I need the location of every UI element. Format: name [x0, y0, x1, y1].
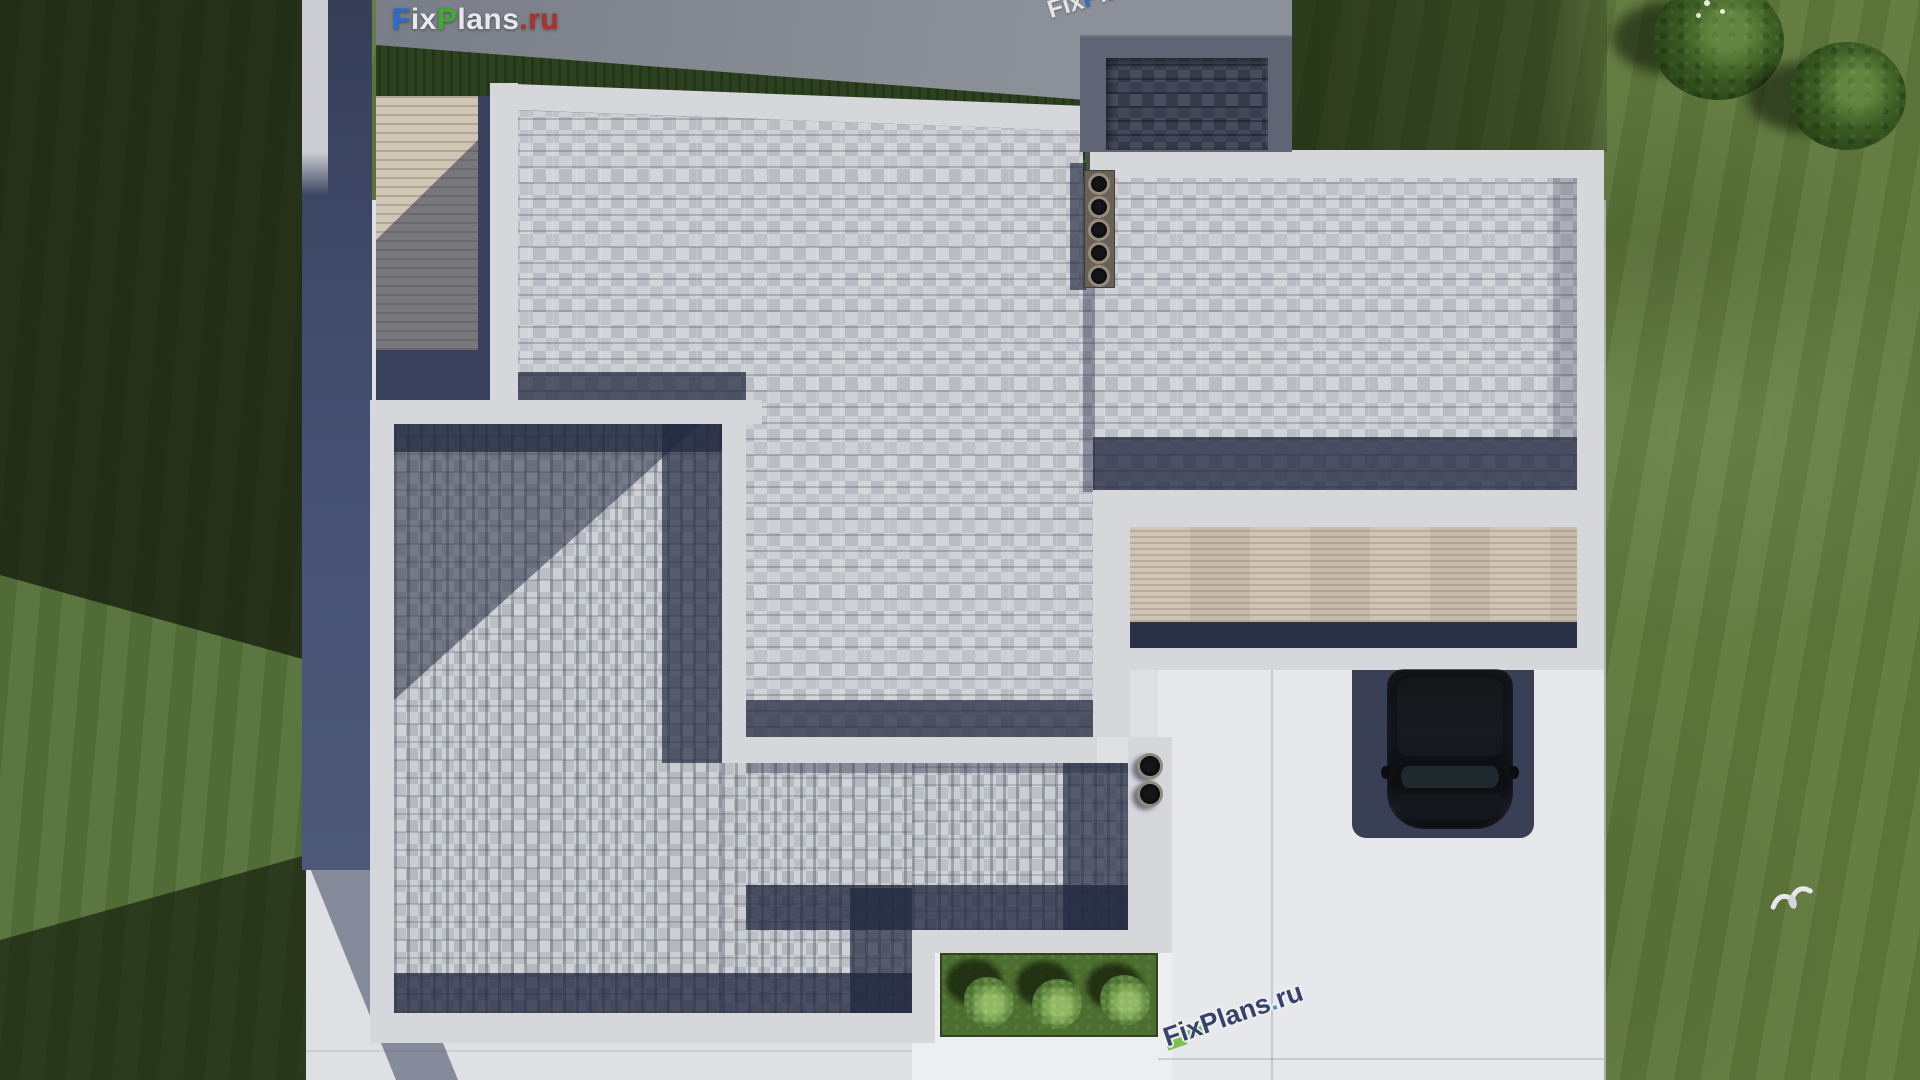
bush [1100, 975, 1150, 1025]
car-roof-highlight [1397, 678, 1503, 756]
parapet-mid-vertical [722, 400, 746, 763]
lawn-north-shade [1292, 0, 1607, 152]
tree-blossom [1704, 0, 1710, 6]
brand-logo-letter-p: P [437, 3, 458, 36]
car [1388, 670, 1512, 828]
brand-logo-letter-f: F [392, 3, 411, 36]
roof-shadow-right-sliver [1553, 177, 1577, 437]
roof-lower-bottom-band [394, 973, 912, 1013]
parapet-left-lower [370, 400, 394, 1043]
chimney [1084, 170, 1115, 288]
car-hood [1398, 794, 1502, 820]
brand-logo: FixPlans.ru [392, 3, 559, 37]
brand-logo-letters-ix: ix [411, 3, 437, 36]
chimney-flue [1088, 196, 1110, 218]
chimney-flue [1088, 265, 1110, 287]
garden-path [302, 0, 328, 195]
chimney-flue [1088, 173, 1110, 195]
roof-step-top-sliver [746, 763, 1128, 773]
pergola-canopy [1130, 527, 1577, 622]
chimney-flue [1088, 242, 1110, 264]
car-windshield [1401, 766, 1499, 788]
bush [964, 977, 1014, 1027]
parapet-left-upper [490, 83, 518, 424]
parapet-right-top [1090, 150, 1604, 178]
under-deck-shadow [376, 350, 490, 400]
roof-step-right-band [1063, 763, 1128, 930]
roof-vent [1137, 781, 1163, 807]
tree-blossom [1720, 9, 1725, 14]
planting-bed [940, 953, 1158, 1037]
parapet-bottom-left [370, 1013, 935, 1043]
car-mirror-left [1381, 766, 1390, 779]
chimney-flue [1088, 219, 1110, 241]
parapet-right-edge [1577, 150, 1604, 670]
parapet-column [1093, 490, 1130, 737]
expansion-joint-vertical [1271, 670, 1273, 1080]
entrance-canopy-roof [1106, 58, 1268, 150]
tree-blossom [1696, 13, 1701, 18]
bird-icon [1764, 874, 1821, 925]
tree [1788, 42, 1906, 150]
brand-logo-domain: .ru [519, 3, 559, 36]
parapet-below-canopy [1130, 648, 1577, 670]
pergola-shadow [1130, 622, 1577, 648]
roof-vent [1137, 753, 1163, 779]
aerial-roof-plan-render: FixPlans.ru FixPlans.ru FixPlans.ru [0, 0, 1920, 1080]
roof-shadow-upper-se-band [1093, 437, 1577, 492]
roof-shadow-upper-bottom-band [746, 700, 1093, 740]
parapet-mid-horizontal [370, 400, 762, 424]
parapet-se-horizontal [1093, 490, 1604, 527]
expansion-joint-horizontal-right [1158, 1058, 1604, 1060]
roof-shadow-upper-left-band [508, 372, 746, 402]
bush [1032, 979, 1082, 1029]
car-mirror-right [1510, 766, 1519, 779]
brand-logo-letters-lans: lans [457, 3, 519, 36]
parapet-bottom-mid [722, 737, 1097, 763]
roof-lower-right-band [662, 424, 722, 763]
